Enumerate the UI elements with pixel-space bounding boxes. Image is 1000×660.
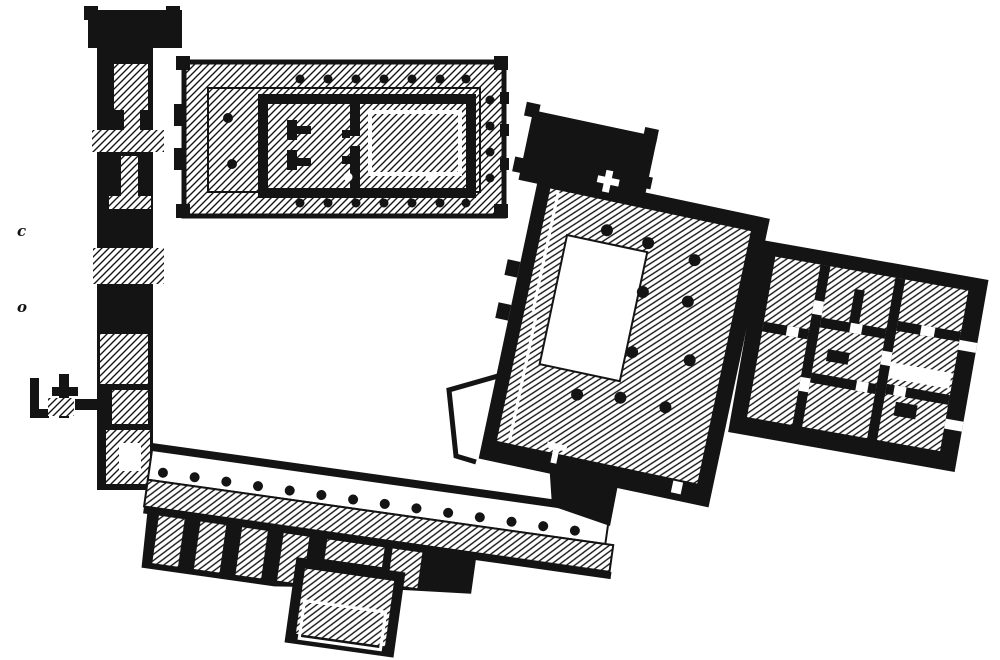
temple-anta [174,148,185,170]
cella-divider-nub [342,156,350,164]
wall-chamber [112,390,148,424]
temple-east-bump [500,124,509,136]
cella-pillar-arm [297,158,311,166]
column [486,174,495,183]
cella-pillar [287,150,297,170]
column [296,75,305,84]
cella-pillar-arm [297,126,311,134]
west-gate-stub [75,399,98,410]
temple-east-bump [500,92,509,104]
west-gate-pier [52,387,78,396]
column [380,75,389,84]
column [486,122,495,131]
cap-knob [84,6,98,20]
temple-corner-knob [494,204,508,218]
cella-door-gap [426,173,435,182]
column [462,75,471,84]
column [296,199,305,208]
door-gap [849,323,863,335]
cap-knob [166,6,180,20]
door-gap [786,326,800,338]
door-gap [893,385,907,397]
wall-chamber [100,334,148,384]
pylon-knob [524,102,541,119]
temple-anta [174,104,185,126]
pronaos-column [227,159,237,169]
wall-chamber-void [119,443,141,471]
pylon-knob [642,127,659,144]
pronaos-column [223,113,233,123]
annotation-letter-c: c [17,222,26,240]
column [436,75,445,84]
west-enclosure-wall [30,6,182,490]
column [408,75,417,84]
cella-divider [350,104,360,136]
column [352,199,361,208]
east-building-floor [747,257,968,452]
column [486,96,495,105]
column [408,199,417,208]
cella-door-gap [344,173,353,182]
wall-chamber [114,64,148,110]
temple-corner-knob [494,56,508,70]
annotation-letter-o: o [17,298,27,316]
column [352,75,361,84]
upper-temple [174,56,509,218]
sanctuary-floor [372,114,458,172]
temple-corner-knob [176,56,190,70]
cella-divider-nub [342,130,350,138]
west-gate-threshold [48,398,74,416]
wall-chamber [93,248,164,284]
wall-chamber [121,156,138,200]
column [324,75,333,84]
wall-chamber [124,108,140,130]
temple-east-bump [500,158,509,170]
wall-chamber [109,196,151,209]
south-stoa [128,443,620,660]
temple-corner-knob [176,204,190,218]
site-plan: co [0,0,1000,660]
column [324,199,333,208]
column [486,148,495,157]
column [462,199,471,208]
wall-chamber [92,130,164,152]
site-plan-svg: co [0,0,1000,660]
cella-pillar [287,120,297,140]
column [436,199,445,208]
east-chambers-building [728,240,988,472]
door-gap [855,381,869,393]
west-gate-pier [30,409,49,418]
cella-divider [350,146,360,188]
column [380,199,389,208]
